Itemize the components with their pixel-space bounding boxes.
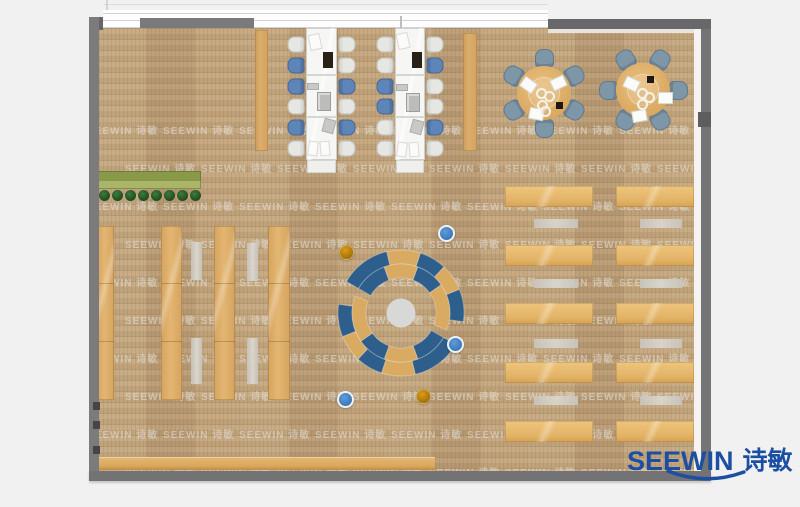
watermark-text: SEEWIN 诗敏 <box>581 160 652 175</box>
watermark-text: SEEWIN 诗敏 <box>353 312 424 327</box>
wall-fixture <box>93 421 100 429</box>
study-bench <box>534 339 578 348</box>
desk-item-paper <box>320 142 329 156</box>
shelf-bench <box>247 243 258 281</box>
study-bench <box>640 279 682 288</box>
plant-bush <box>151 190 162 201</box>
watermark-text: SEEWIN 诗敏 <box>315 274 386 289</box>
desk-item-laptop <box>323 52 333 68</box>
desk-module-divider <box>395 74 425 76</box>
wall-right-sill <box>694 29 701 471</box>
floor-plan-canvas: SEEWIN 诗敏SEEWIN 诗敏SEEWIN 诗敏SEEWIN 诗敏SEEW… <box>0 0 800 507</box>
desk-chair <box>288 141 305 157</box>
shelf-divider <box>161 341 182 342</box>
window-mullion-line <box>103 13 548 14</box>
bookshelf-strip <box>99 226 114 400</box>
study-desk <box>616 186 694 207</box>
desk-chair <box>288 58 305 74</box>
desk-chair <box>427 141 444 157</box>
watermark-text: SEEWIN 诗敏 <box>239 426 310 441</box>
shelf-divider <box>99 341 114 342</box>
brand-logo: SEEWIN 诗敏 <box>627 448 793 475</box>
desk-chair <box>288 99 305 115</box>
table-tablet <box>647 76 654 83</box>
bottom-counter <box>99 457 435 470</box>
wall-bottom <box>89 471 711 481</box>
window-frame-line <box>104 4 548 5</box>
desk-item-grayitem <box>396 84 408 91</box>
watermark-text: SEEWIN 诗敏 <box>353 388 424 403</box>
desk-chair <box>377 120 394 136</box>
desk-chair <box>427 58 444 74</box>
study-bench <box>640 219 682 228</box>
desk-module-divider <box>306 74 337 76</box>
desk-item-device <box>406 93 420 112</box>
watermark-text: SEEWIN 诗敏 <box>429 312 500 327</box>
study-bench <box>534 279 578 288</box>
desk-chair <box>427 37 444 53</box>
study-desk <box>616 245 694 266</box>
watermark-text: SEEWIN 诗敏 <box>99 426 158 441</box>
study-bench <box>640 339 682 348</box>
study-desk <box>616 303 694 324</box>
watermark-text: SEEWIN 诗敏 <box>391 274 462 289</box>
study-desk <box>505 362 593 383</box>
plant-bush <box>177 190 188 201</box>
stool-orange <box>339 245 354 260</box>
bookshelf-strip <box>214 226 235 400</box>
bookshelf-strip <box>161 226 182 400</box>
plant-bush <box>125 190 136 201</box>
watermark-text: SEEWIN 诗敏 <box>163 122 234 137</box>
watermark-text: SEEWIN 诗敏 <box>505 160 576 175</box>
desk-chair <box>427 79 444 95</box>
table-cup <box>540 106 551 117</box>
stool-blue <box>337 391 354 408</box>
shelf-divider <box>161 283 182 284</box>
wood-panel <box>255 30 268 151</box>
watermark-text: SEEWIN 诗敏 <box>315 350 386 365</box>
study-bench <box>534 219 578 228</box>
cluster-desk-endcap <box>396 160 424 173</box>
desk-item-grayitem <box>307 83 319 90</box>
bookshelf-strip <box>268 226 290 400</box>
watermark-text: SEEWIN 诗敏 <box>239 198 310 213</box>
watermark-text: SEEWIN 诗敏 <box>505 464 576 471</box>
desk-chair <box>339 120 356 136</box>
room-floor: SEEWIN 诗敏SEEWIN 诗敏SEEWIN 诗敏SEEWIN 诗敏SEEW… <box>99 28 694 471</box>
study-desk <box>505 303 593 324</box>
desk-chair <box>339 58 356 74</box>
wall-inner-edge <box>548 29 694 33</box>
plant-bush <box>164 190 175 201</box>
desk-chair <box>288 79 305 95</box>
desk-module-divider <box>306 116 337 118</box>
watermark-text: SEEWIN 诗敏 <box>201 160 272 175</box>
logo-swoosh-icon <box>666 469 746 483</box>
wall-right <box>701 29 711 480</box>
study-desk <box>505 186 593 207</box>
wall-fixture <box>93 402 100 410</box>
stool-orange <box>416 389 431 404</box>
wall-top-right-segment <box>548 19 711 29</box>
desk-chair <box>377 99 394 115</box>
desk-item-device <box>317 92 331 111</box>
table-paper <box>632 110 647 122</box>
watermark-text: SEEWIN 诗敏 <box>99 122 158 137</box>
wall-top-left-segment <box>140 18 254 28</box>
watermark-text: SEEWIN 诗敏 <box>201 236 272 251</box>
watermark-text: SEEWIN 诗敏 <box>201 388 272 403</box>
desk-chair <box>377 79 394 95</box>
desk-chair <box>339 141 356 157</box>
watermark-text: SEEWIN 诗敏 <box>429 388 500 403</box>
plant-bush <box>190 190 201 201</box>
desk-chair <box>377 58 394 74</box>
watermark-text: SEEWIN 诗敏 <box>353 236 424 251</box>
watermark-text: SEEWIN 诗敏 <box>391 198 462 213</box>
table-cup <box>637 99 648 110</box>
cluster-desk-endcap <box>307 160 336 173</box>
round-table-chair <box>535 119 554 138</box>
brand-logo-cn-text: 诗敏 <box>743 448 793 474</box>
desk-item-laptop <box>412 52 422 68</box>
bench-segment-outer <box>387 250 421 266</box>
watermark-text: SEEWIN 诗敏 <box>467 122 538 137</box>
desk-chair <box>427 120 444 136</box>
wall-fixture <box>93 446 100 454</box>
stool-blue <box>447 336 464 353</box>
shelf-divider <box>214 283 235 284</box>
desk-chair <box>288 37 305 53</box>
study-desk <box>616 362 694 383</box>
shelf-bench <box>191 242 202 280</box>
watermark-text: SEEWIN 诗敏 <box>467 274 538 289</box>
watermark-text: SEEWIN 诗敏 <box>657 160 694 175</box>
stool-blue <box>438 225 455 242</box>
watermark-text: SEEWIN 诗敏 <box>163 198 234 213</box>
desk-chair <box>288 120 305 136</box>
study-bench <box>534 396 578 405</box>
study-bench <box>640 396 682 405</box>
desk-chair <box>339 99 356 115</box>
shelf-divider <box>268 283 290 284</box>
table-paper <box>659 93 672 103</box>
shelf-divider <box>268 341 290 342</box>
shelf-bench <box>191 338 202 384</box>
round-table-chair <box>535 49 554 68</box>
wall-right-column <box>698 112 711 127</box>
watermark-text: SEEWIN 诗敏 <box>391 426 462 441</box>
wood-panel <box>463 33 477 151</box>
desk-chair <box>427 99 444 115</box>
desk-chair <box>377 37 394 53</box>
study-desk <box>616 421 694 442</box>
watermark-text: SEEWIN 诗敏 <box>429 464 500 471</box>
desk-module-divider <box>395 116 425 118</box>
desk-item-paper <box>409 143 418 157</box>
watermark-text: SEEWIN 诗敏 <box>315 198 386 213</box>
study-desk <box>505 245 593 266</box>
shelf-bench <box>247 338 258 384</box>
plant-bush <box>138 190 149 201</box>
planter-box <box>99 171 201 189</box>
round-table-chair <box>599 81 618 100</box>
shelf-divider <box>99 283 114 284</box>
watermark-text: SEEWIN 诗敏 <box>315 426 386 441</box>
wall-left <box>89 17 99 480</box>
watermark-text: SEEWIN 诗敏 <box>163 426 234 441</box>
desk-chair <box>377 141 394 157</box>
desk-chair <box>339 37 356 53</box>
watermark-text: SEEWIN 诗敏 <box>429 160 500 175</box>
study-desk <box>505 421 593 442</box>
shelf-divider <box>214 341 235 342</box>
table-tablet <box>556 102 563 109</box>
plant-bush <box>112 190 123 201</box>
watermark-text: SEEWIN 诗敏 <box>201 312 272 327</box>
plant-bush <box>99 190 110 201</box>
desk-chair <box>339 79 356 95</box>
